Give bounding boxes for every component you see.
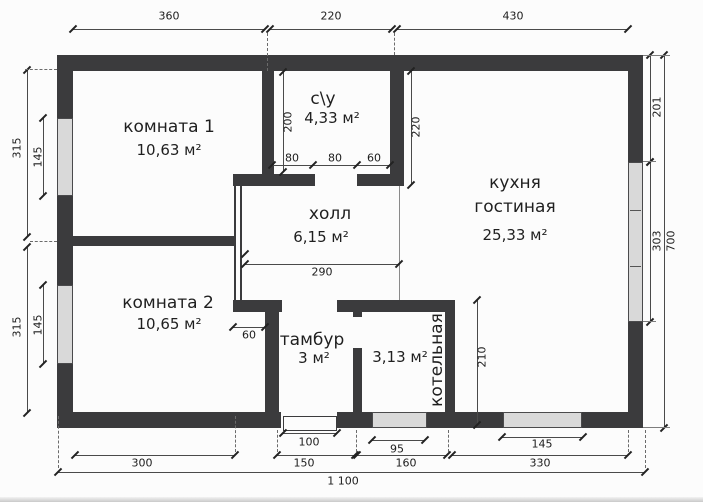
entrance-door [283, 416, 337, 431]
room-label-room1: комната 1 [123, 117, 215, 137]
dim-label-right-201: 201 [651, 97, 664, 118]
dim-label-kitchen-220: 220 [410, 117, 423, 138]
dim-label-top-220: 220 [321, 10, 342, 23]
dim-line-top-220 [270, 29, 392, 30]
extension-line [643, 427, 670, 428]
dim-line-top-360 [73, 29, 265, 30]
door-swing-tick [241, 250, 249, 258]
wall-bottom-seg4 [582, 412, 643, 428]
dim-label-left-145a: 145 [32, 147, 45, 168]
wall-bottom-seg3 [427, 412, 503, 428]
extension-line [448, 430, 449, 452]
extension-line [267, 33, 268, 71]
extension-line [643, 161, 656, 162]
dim-label-bottom-330: 330 [530, 457, 551, 470]
window-mullion-icon [630, 266, 641, 267]
dim-label-top-360: 360 [159, 10, 180, 23]
dim-label-left-315b: 315 [11, 317, 24, 338]
dim-line-bottom-95 [372, 440, 425, 441]
dim-label-bottom-95: 95 [390, 443, 404, 456]
dim-label-su-80a: 80 [285, 152, 299, 165]
dim-label-right-303: 303 [651, 231, 664, 252]
extension-line [356, 430, 357, 452]
extension-line [25, 69, 57, 70]
room-area-hall: 6,15 м² [293, 228, 349, 246]
extension-line [58, 416, 59, 468]
dim-label-bottom-160: 160 [396, 457, 417, 470]
dim-line-bottom-150 [277, 455, 355, 456]
room-area-room1: 10,63 м² [136, 141, 201, 159]
wall-rooms-divider [57, 236, 241, 246]
extension-line [30, 241, 57, 242]
wall-bathroom-right [390, 71, 404, 186]
window-kitchen-right [628, 162, 643, 322]
extension-line [277, 430, 278, 452]
window-room1 [57, 118, 73, 196]
room-area-boiler: 3,13 м² [372, 348, 428, 366]
dim-label-right-700: 700 [665, 231, 678, 252]
dim-label-bottom-145: 145 [532, 438, 553, 451]
room-label-boiler: котельная [427, 313, 447, 407]
dim-line-left-315b [27, 247, 28, 413]
window-boiler [372, 412, 427, 428]
dim-line-top-430 [397, 29, 628, 30]
wall-bottom-seg2 [337, 412, 372, 428]
dim-label-su-60: 60 [367, 152, 381, 165]
wall-top [57, 55, 643, 71]
room-label-tambour: тамбур [280, 330, 344, 350]
room-area-bathroom: 4,33 м² [304, 109, 360, 127]
dim-label-su-200: 200 [282, 112, 295, 133]
wall-bathroom-left [262, 71, 274, 174]
room-label-hall: холл [309, 204, 351, 224]
dim-label-left-315a: 315 [11, 138, 24, 159]
room-label-bathroom: с\у [310, 89, 335, 109]
room-area-room2: 10,65 м² [136, 315, 201, 333]
wall-boiler-left-upper [353, 300, 362, 317]
room-area-kitchen: 25,33 м² [482, 226, 547, 244]
dim-label-total-1100: 1 100 [327, 475, 359, 488]
room-label-kitchen-line2: гостиная [474, 197, 555, 217]
dim-label-boiler-210: 210 [476, 347, 489, 368]
window-kitchen-bottom [503, 412, 582, 428]
wall-tambour-left [265, 312, 279, 412]
dim-line-bottom-300 [75, 455, 235, 456]
room-label-kitchen-line1: кухня [489, 173, 541, 193]
wall-bottom-seg1 [57, 412, 281, 428]
window-mullion-icon [630, 210, 641, 211]
dim-label-bottom-300: 300 [132, 457, 153, 470]
dim-line-left-315a [27, 70, 28, 237]
room-label-room2: комната 2 [122, 293, 214, 313]
dim-line-su-80-80-60 [272, 165, 390, 166]
dim-label-bottom-100: 100 [299, 436, 320, 449]
extension-line [643, 321, 656, 322]
wall-bathroom-bottom-left [233, 174, 315, 186]
wall-hall-partition [234, 186, 242, 300]
floor-plan: комната 1 10,63 м² с\у 4,33 м² холл 6,15… [0, 0, 703, 502]
photo-edge [0, 497, 703, 502]
dim-label-left-145b: 145 [32, 315, 45, 336]
window-room2 [57, 285, 73, 364]
wall-bathroom-bottom-right [357, 174, 404, 186]
extension-line [643, 55, 670, 56]
dim-label-hall-290: 290 [312, 266, 333, 279]
room-area-tambour: 3 м² [298, 349, 330, 367]
extension-line [235, 416, 236, 452]
dim-label-top-430: 430 [503, 10, 524, 23]
extension-line [394, 33, 395, 55]
dim-line-bottom-100 [283, 433, 337, 434]
extension-line [628, 430, 629, 452]
dim-label-su-80b: 80 [328, 152, 342, 165]
extension-line [645, 430, 646, 468]
hall-kitchen-boundary-line [399, 186, 400, 300]
dim-label-bottom-150: 150 [294, 457, 315, 470]
dim-label-stub-60: 60 [242, 329, 256, 342]
wall-boiler-left-lower [353, 348, 362, 412]
dim-line-total-1100 [58, 472, 645, 473]
wall-tambour-top [233, 300, 282, 312]
